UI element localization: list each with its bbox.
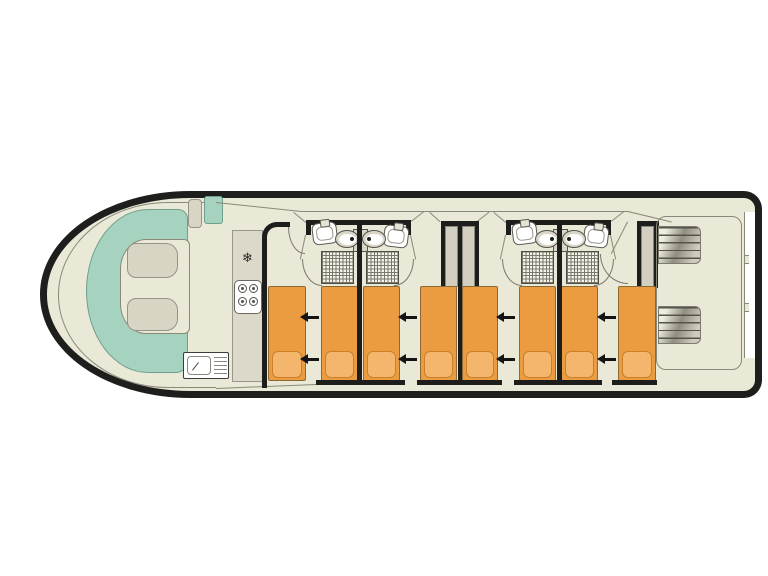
- stern-gunwale-inset: [744, 212, 755, 358]
- bed-slide-arrow-2: [308, 358, 319, 361]
- pillow-5: [466, 351, 494, 378]
- bed-slide-arrow-3: [406, 316, 417, 319]
- bath1-stub-left: [306, 220, 311, 235]
- pillow-4: [424, 351, 453, 378]
- roofline-mid: [301, 211, 628, 212]
- stern-cleat-bottom: [744, 303, 749, 312]
- bottom-wall-2: [417, 380, 502, 385]
- washbasin-cabin1: [311, 221, 338, 246]
- washbasin-cabin3: [511, 221, 538, 246]
- toilet-cabin2: [362, 230, 386, 248]
- cabin-wall-1: [357, 220, 362, 383]
- corridor-wall: [262, 222, 290, 388]
- toilet-cabin3: [535, 230, 559, 248]
- washbasin-cabin4: [582, 224, 609, 249]
- stove-burner-1: [238, 284, 247, 293]
- cabin-wall-3: [557, 220, 562, 383]
- toilet-cabin1: [335, 230, 359, 248]
- bed-slide-arrow-1: [308, 316, 319, 319]
- stove-burner-4: [249, 297, 258, 306]
- wardrobe-cabin2: [445, 226, 458, 287]
- bed-slide-arrow-6: [504, 358, 515, 361]
- pillow-6: [523, 351, 552, 378]
- pillow-3: [367, 351, 396, 378]
- shower-cabin3: [521, 251, 554, 284]
- bow-table-lower: [127, 298, 178, 331]
- fridge-icon: ❄: [233, 250, 262, 268]
- bed-slide-arrow-4: [406, 358, 417, 361]
- washbasin-cabin2: [382, 224, 409, 249]
- shower-cabin1: [321, 251, 354, 284]
- stern-steps-top: [658, 226, 701, 264]
- wardrobe-cabin4: [641, 226, 654, 288]
- bed-slide-arrow-8: [605, 358, 616, 361]
- pillow-7: [565, 351, 594, 378]
- galley-drainer: [214, 357, 227, 375]
- bottom-wall-3: [514, 380, 602, 385]
- stove-burner-3: [238, 297, 247, 306]
- bed-slide-arrow-5: [504, 316, 515, 319]
- helm-console: [204, 196, 223, 224]
- pillow-2: [325, 351, 354, 378]
- bottom-wall-1: [316, 380, 405, 385]
- bath2-stub-left: [506, 220, 511, 235]
- bow-table-upper: [127, 243, 178, 278]
- pillow-8: [622, 351, 652, 378]
- shower-cabin2: [366, 251, 399, 284]
- shower-cabin4: [566, 251, 599, 284]
- wardrobe-cabin3: [462, 226, 475, 287]
- wardrobe-mid-wall-right: [475, 221, 479, 287]
- bottom-wall-4: [612, 380, 657, 385]
- galley-sink-bowl: [187, 356, 211, 375]
- bed-slide-arrow-7: [605, 316, 616, 319]
- helm-seat: [188, 199, 202, 228]
- toilet-cabin4: [562, 230, 586, 248]
- cabin-wall-2: [458, 221, 462, 383]
- stern-cleat-top: [744, 255, 749, 264]
- stove-burner-2: [249, 284, 258, 293]
- boat-floorplan: ❄: [0, 0, 768, 576]
- stern-steps-bottom: [658, 306, 701, 344]
